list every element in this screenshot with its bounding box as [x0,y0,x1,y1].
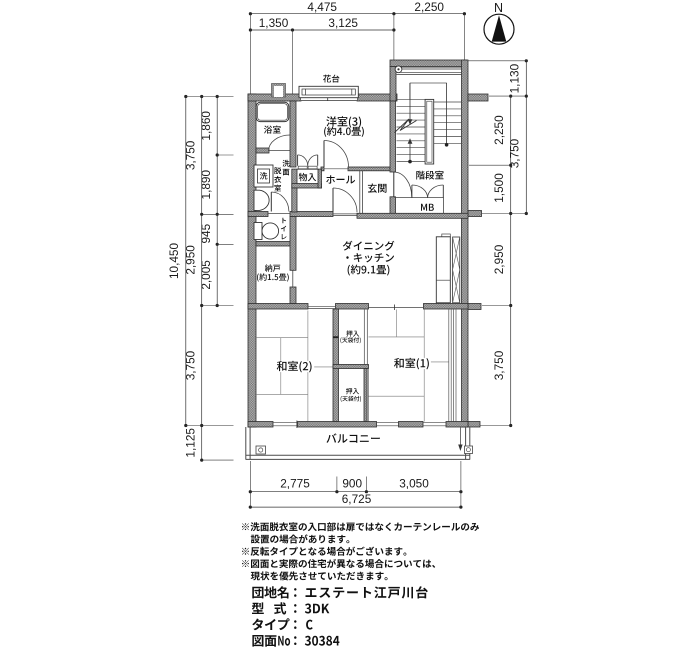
svg-text:1,860: 1,860 [199,111,213,141]
svg-text:10,450: 10,450 [167,243,181,280]
svg-text:2,950: 2,950 [492,244,506,274]
svg-text:900: 900 [342,477,362,491]
svg-text:3,750: 3,750 [184,350,198,380]
svg-text:1,350: 1,350 [259,16,289,30]
svg-text:2,250: 2,250 [414,0,444,14]
svg-text:3,750: 3,750 [492,350,506,380]
svg-text:1,890: 1,890 [199,170,213,200]
svg-text:2,250: 2,250 [492,115,506,145]
svg-text:6,725: 6,725 [342,492,372,506]
svg-text:2,775: 2,775 [280,477,310,491]
svg-text:N: N [494,1,503,15]
svg-text:2,005: 2,005 [199,260,213,290]
svg-text:3,750: 3,750 [507,138,521,168]
svg-text:945: 945 [199,223,213,243]
svg-text:1,125: 1,125 [184,428,198,458]
svg-text:3,125: 3,125 [328,16,358,30]
svg-text:3,050: 3,050 [399,477,429,491]
svg-text:1,130: 1,130 [507,63,521,93]
svg-text:3,750: 3,750 [184,140,198,170]
svg-text:1,500: 1,500 [492,173,506,203]
svg-text:4,475: 4,475 [307,0,337,14]
svg-text:2,950: 2,950 [184,245,198,275]
